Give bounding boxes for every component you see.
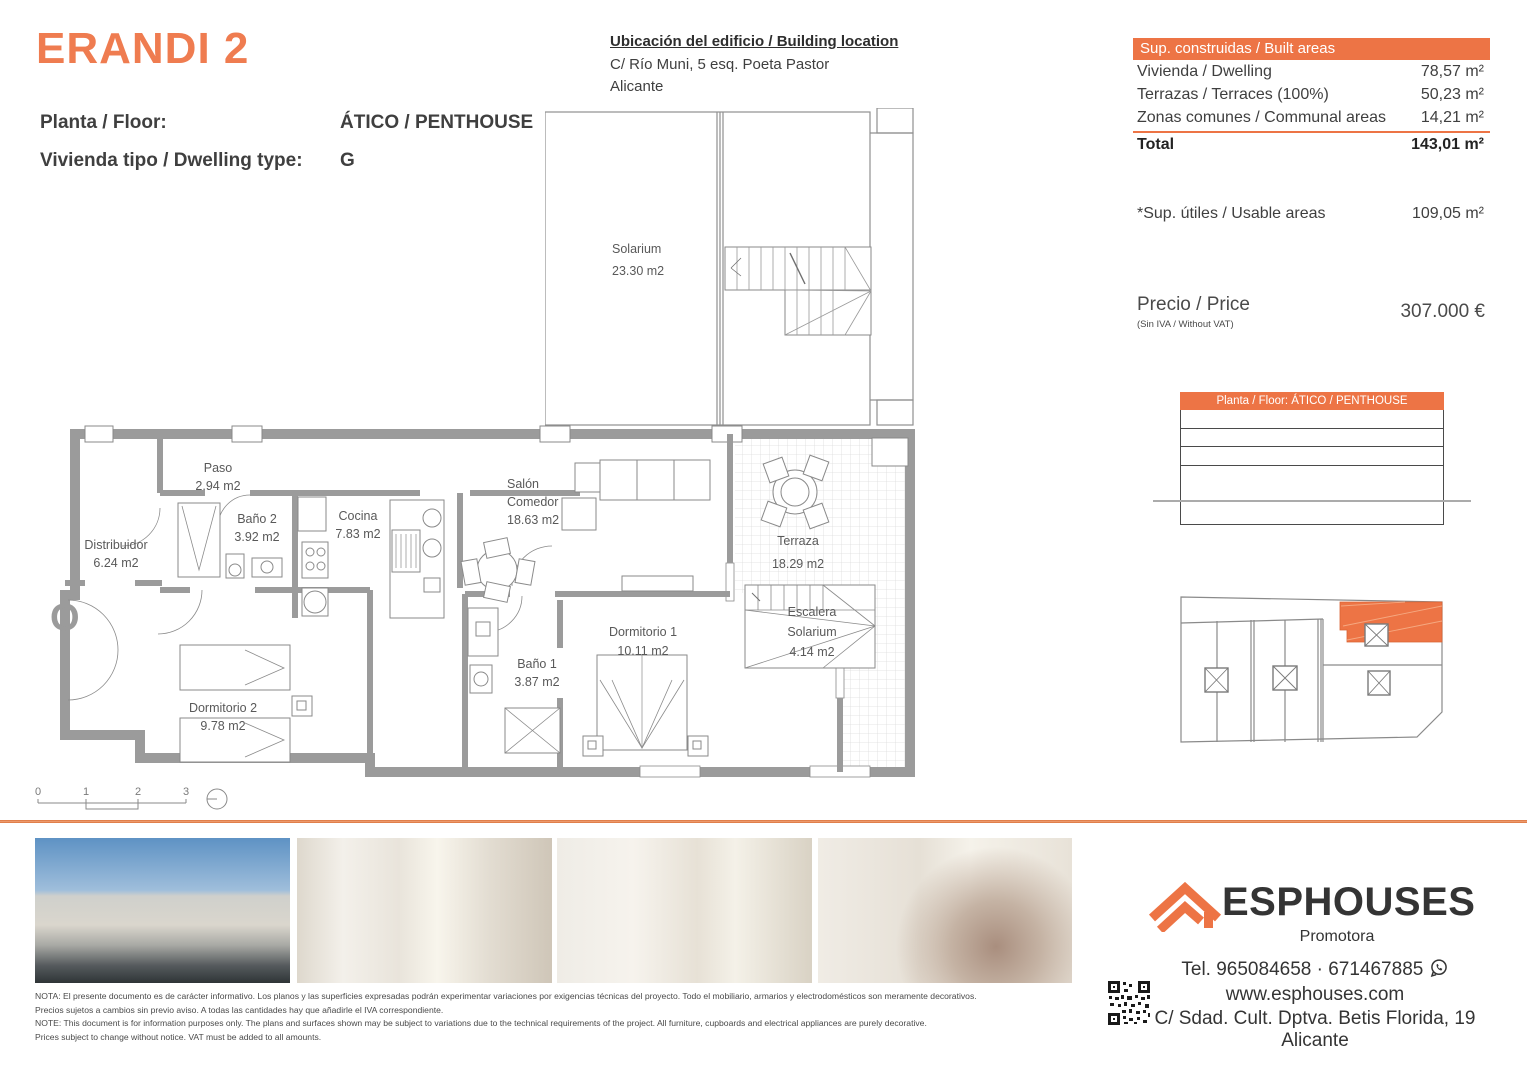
table-row: Vivienda / Dwelling 78,57 m²	[1133, 60, 1490, 83]
room-area-distribuidor: 6.24 m2	[93, 556, 138, 570]
brand-tagline: Promotora	[1222, 928, 1452, 946]
room-label-dormitorio2: Dormitorio 2	[189, 701, 257, 715]
room-label-escalera-1: Escalera	[788, 605, 837, 619]
floor-key-row	[1180, 429, 1444, 447]
brand-phone: Tel. 965084658 · 671467885	[1150, 958, 1480, 981]
room-area-bano2: 3.92 m2	[234, 530, 279, 544]
total-value: 143,01 m²	[1411, 136, 1484, 154]
floor-key-table: Planta / Floor: ÁTICO / PENTHOUSE	[1180, 392, 1444, 525]
room-area-solarium: 23.30 m2	[612, 264, 664, 278]
solarium-plan: Solarium 23.30 m2	[545, 108, 940, 433]
usable-areas-row: *Sup. útiles / Usable areas 109,05 m²	[1133, 205, 1490, 223]
price-label-block: Precio / Price (Sin IVA / Without VAT)	[1137, 295, 1250, 335]
bedroom1-furniture	[583, 655, 708, 756]
disclaimer-line: NOTA: El presente documento es de caráct…	[35, 990, 1095, 1004]
room-area-dormitorio2: 9.78 m2	[200, 719, 245, 733]
scale-tick: 2	[135, 786, 141, 798]
room-area-paso: 2.94 m2	[195, 479, 240, 493]
room-label-cocina: Cocina	[339, 509, 378, 523]
floor-key-row	[1180, 410, 1444, 429]
room-area-cocina: 7.83 m2	[335, 527, 380, 541]
built-areas-table: Sup. construidas / Built areas Vivienda …	[1133, 38, 1490, 154]
price-sublabel: (Sin IVA / Without VAT)	[1137, 315, 1250, 335]
scale-tick: 0	[35, 786, 41, 798]
floor-key-row	[1180, 466, 1444, 502]
row-label: Vivienda / Dwelling	[1137, 63, 1272, 81]
row-label: Terrazas / Terraces (100%)	[1137, 86, 1329, 104]
built-areas-header: Sup. construidas / Built areas	[1133, 38, 1490, 60]
price-value: 307.000 €	[1300, 301, 1485, 323]
room-area-dormitorio1: 10.11 m2	[617, 644, 668, 658]
photo-building-exterior	[35, 838, 290, 983]
table-row: Terrazas / Terraces (100%) 50,23 m²	[1133, 83, 1490, 106]
brand-website: www.esphouses.com	[1150, 984, 1480, 1006]
room-area-escalera: 4.14 m2	[789, 645, 834, 659]
photo-living-room	[297, 838, 552, 983]
orientation-letter: O	[50, 597, 80, 639]
highlighted-unit	[1340, 602, 1442, 642]
building-location-city: Alicante	[610, 78, 663, 95]
row-value: 78,57 m²	[1421, 63, 1484, 81]
ground-line	[1153, 500, 1471, 502]
whatsapp-icon	[1429, 958, 1449, 978]
photo-kitchen	[557, 838, 812, 983]
room-label-dormitorio1: Dormitorio 1	[609, 625, 677, 639]
row-value: 50,23 m²	[1421, 86, 1484, 104]
esphouses-logo-icon	[1146, 876, 1224, 932]
floor-key-header: Planta / Floor: ÁTICO / PENTHOUSE	[1180, 392, 1444, 410]
room-label-salon-1: Salón	[507, 477, 539, 491]
orange-divider	[0, 820, 1527, 823]
disclaimer-text: NOTA: El presente documento es de caráct…	[35, 990, 1095, 1044]
photo-bedroom	[818, 838, 1072, 983]
row-value: 14,21 m²	[1421, 109, 1484, 127]
brand-address: C/ Sdad. Cult. Dptva. Betis Florida, 19	[1150, 1008, 1480, 1030]
room-label-terraza: Terraza	[777, 534, 819, 548]
building-location-address: C/ Río Muni, 5 esq. Poeta Pastor	[610, 56, 829, 73]
room-label-salon-2: Comedor	[507, 495, 558, 509]
usable-areas-label: *Sup. útiles / Usable areas	[1137, 205, 1326, 223]
disclaimer-line: NOTE: This document is for information p…	[35, 1017, 1095, 1031]
qr-code	[1107, 980, 1151, 1026]
room-label-paso: Paso	[204, 461, 233, 475]
room-label-solarium: Solarium	[612, 242, 661, 256]
price-label: Precio / Price	[1137, 295, 1250, 315]
floor-label: Planta / Floor:	[40, 112, 340, 134]
room-area-terraza: 18.29 m2	[772, 557, 824, 571]
floorplan-sheet: ERANDI 2 Planta / Floor: ÁTICO / PENTHOU…	[0, 0, 1527, 1080]
brand-city: Alicante	[1150, 1030, 1480, 1052]
scale-bar: 0 1 2 3	[35, 786, 227, 809]
room-label-distribuidor: Distribuidor	[84, 538, 147, 552]
floor-key-row	[1180, 502, 1444, 525]
dwelling-type-label: Vivienda tipo / Dwelling type:	[40, 150, 340, 172]
room-label-escalera-2: Solarium	[787, 625, 836, 639]
living-room-furniture	[461, 460, 710, 602]
row-label: Zonas comunes / Communal areas	[1137, 109, 1386, 127]
usable-areas-value: 109,05 m²	[1412, 205, 1484, 223]
total-row: Total 143,01 m²	[1133, 131, 1490, 154]
page-title: ERANDI 2	[36, 24, 249, 74]
total-label: Total	[1137, 136, 1174, 154]
room-area-bano1: 3.87 m2	[514, 675, 559, 689]
floor-key-row	[1180, 447, 1444, 466]
scale-tick: 1	[83, 786, 89, 798]
room-area-salon: 18.63 m2	[507, 513, 559, 527]
room-label-bano2: Baño 2	[237, 512, 277, 526]
scale-tick: 3	[183, 786, 189, 798]
disclaimer-line: Prices subject to change without notice.…	[35, 1031, 1095, 1045]
table-row: Zonas comunes / Communal areas 14,21 m²	[1133, 106, 1490, 129]
phone-numbers: Tel. 965084658 · 671467885	[1181, 959, 1423, 980]
brand-name: ESPHOUSES	[1222, 880, 1475, 925]
room-label-bano1: Baño 1	[517, 657, 557, 671]
site-key-plan	[1175, 590, 1475, 755]
building-location-heading: Ubicación del edificio / Building locati…	[610, 33, 898, 50]
main-floor-plan: Paso 2.94 m2 Baño 2 3.92 m2 Cocina 7.83 …	[30, 418, 920, 818]
disclaimer-line: Precios sujetos a cambios sin previo avi…	[35, 1004, 1095, 1018]
